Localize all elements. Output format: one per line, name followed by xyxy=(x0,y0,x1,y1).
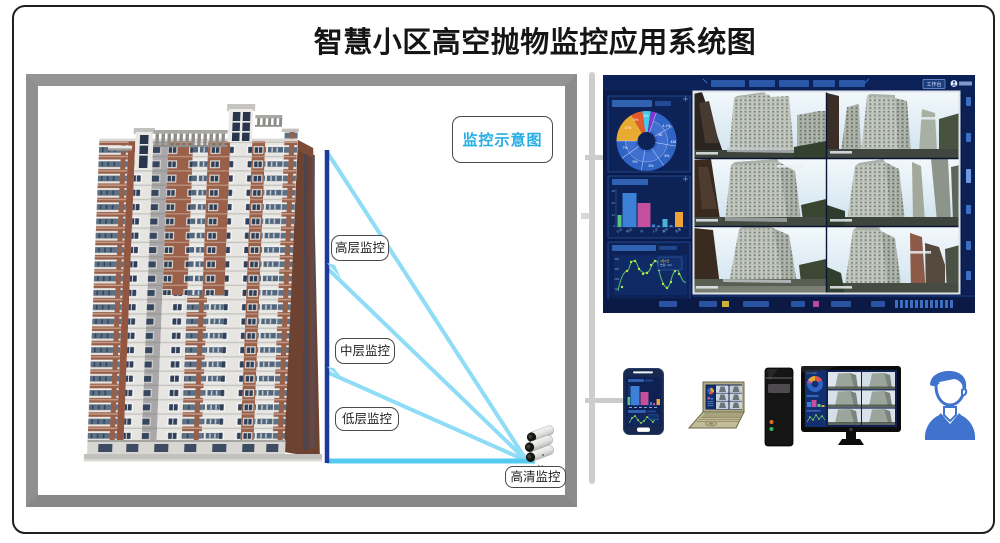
svg-text:400: 400 xyxy=(614,257,619,261)
svg-text:4.1%: 4.1% xyxy=(663,124,671,128)
svg-text:8%: 8% xyxy=(665,154,670,158)
svg-text:7%: 7% xyxy=(623,146,628,150)
svg-text:5%: 5% xyxy=(649,164,654,168)
svg-text:12%: 12% xyxy=(625,126,632,130)
svg-text:告警: 322: 告警: 322 xyxy=(660,263,672,267)
svg-text:438: 438 xyxy=(671,140,677,144)
svg-text:20: 20 xyxy=(612,201,616,205)
svg-text:200: 200 xyxy=(614,277,619,281)
svg-text:工作台: 工作台 xyxy=(926,81,941,88)
svg-text:10: 10 xyxy=(612,213,616,217)
svg-text:6%: 6% xyxy=(634,118,639,122)
svg-text:30: 30 xyxy=(659,133,663,137)
svg-text:30: 30 xyxy=(612,189,616,193)
svg-text:9%: 9% xyxy=(633,160,638,164)
svg-text:300: 300 xyxy=(614,267,619,271)
svg-text:3%: 3% xyxy=(644,114,649,118)
